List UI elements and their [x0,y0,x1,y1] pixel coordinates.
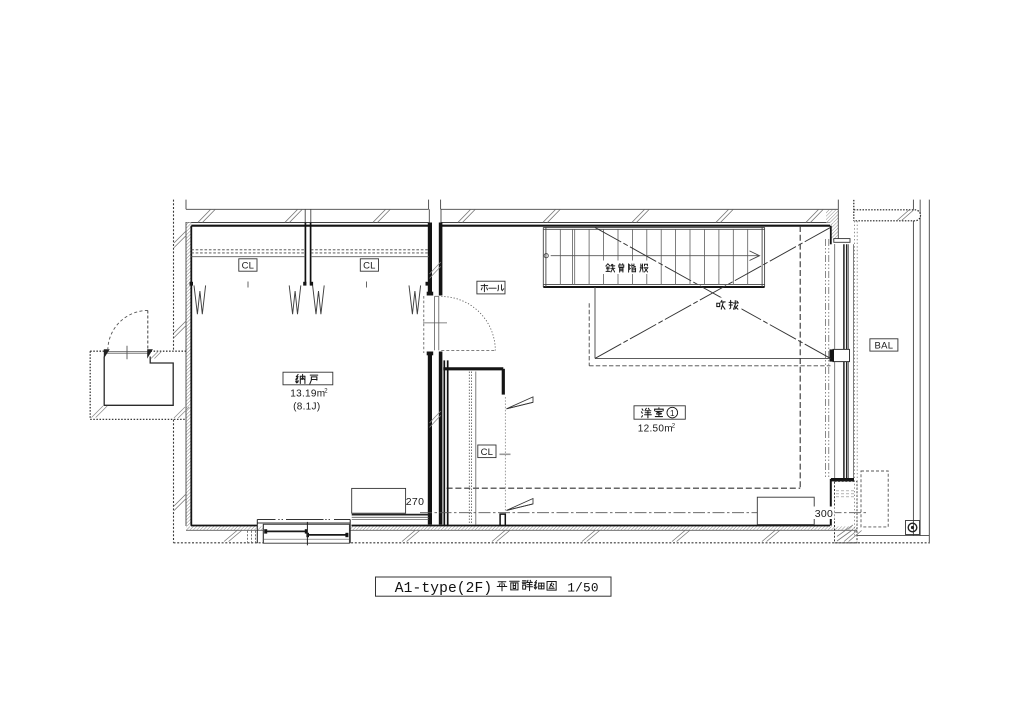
svg-text:13.19m: 13.19m [290,389,325,400]
svg-text:CL: CL [363,261,376,272]
svg-text:(8.1J): (8.1J) [293,402,320,413]
svg-text:2: 2 [672,423,676,429]
svg-text:CL: CL [481,447,494,458]
svg-text:12.50m: 12.50m [638,423,673,434]
svg-text:300: 300 [815,508,833,520]
svg-text:1/50: 1/50 [567,580,599,595]
svg-text:2: 2 [324,389,328,395]
svg-text:BAL: BAL [874,341,893,352]
svg-text:270: 270 [406,496,424,508]
svg-text:CL: CL [242,261,255,272]
svg-text:A1-type(2F): A1-type(2F) [395,581,492,597]
svg-text:1: 1 [670,409,675,418]
